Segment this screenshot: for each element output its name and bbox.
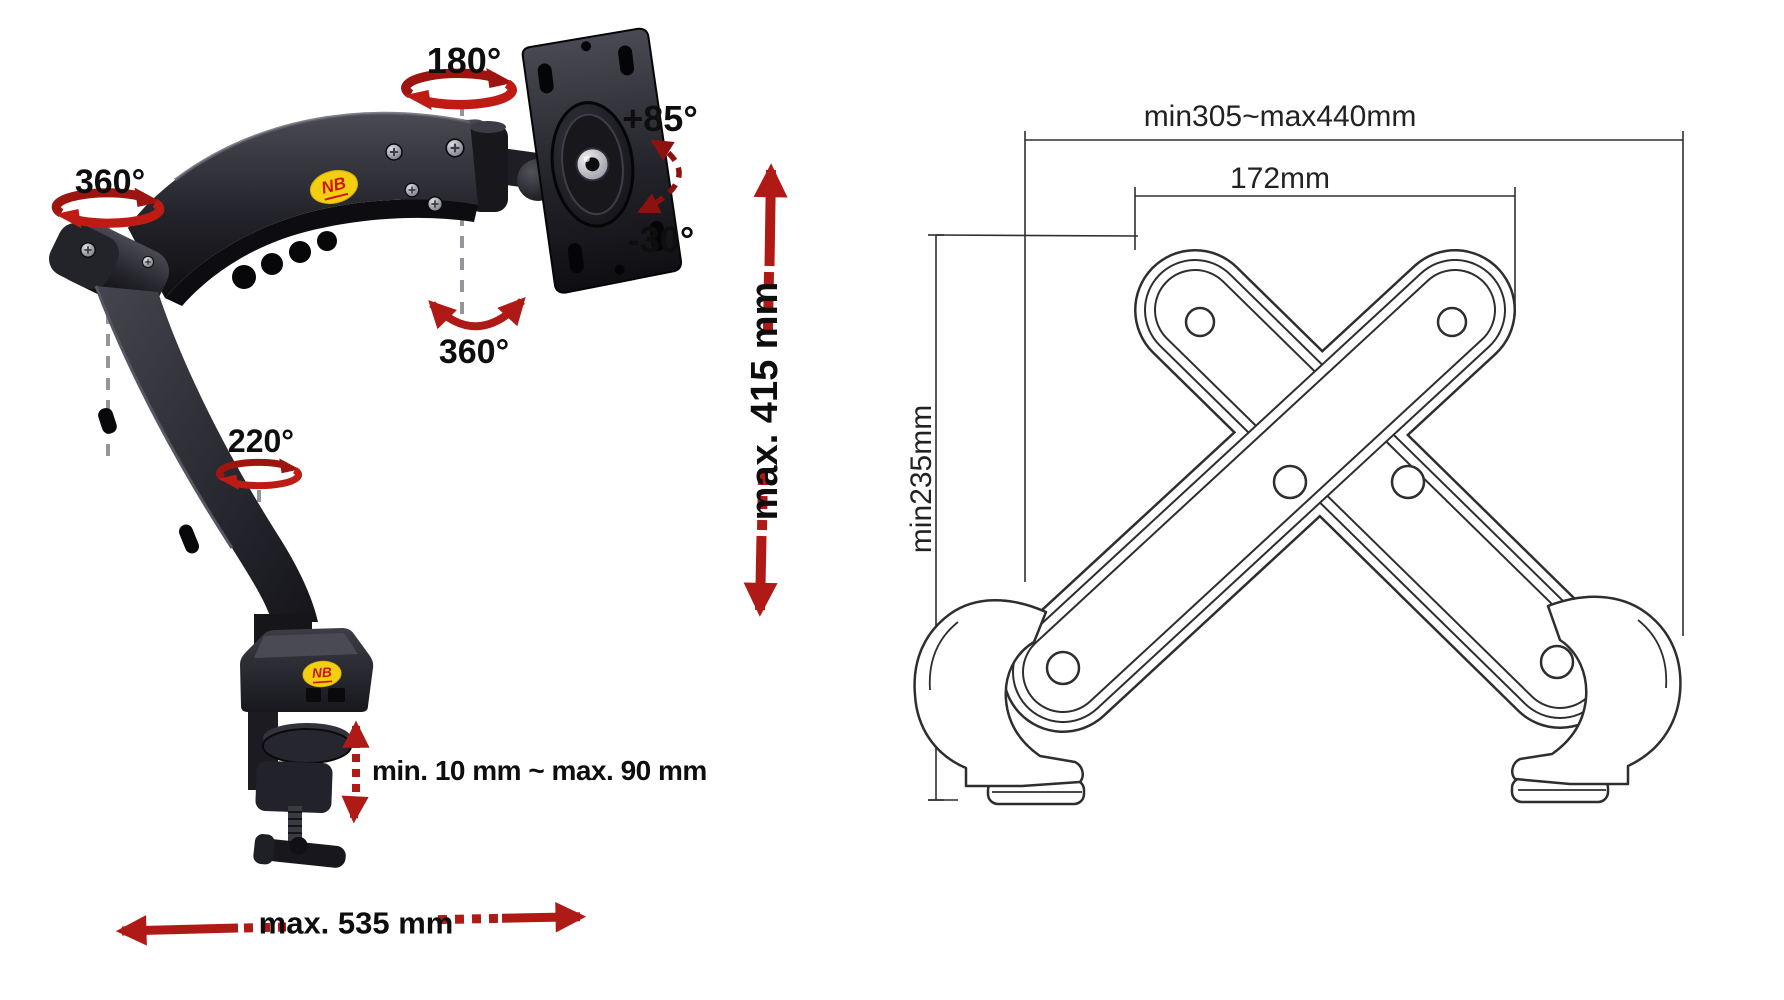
label-bracket-width-range: min305~max440mm [1144, 102, 1417, 132]
desk-clamp-base: NB [240, 628, 373, 873]
clamp-range-arrow [354, 726, 356, 818]
monitor-arm-illustration: NB [43, 27, 771, 931]
rotation-arrow-head-360 [432, 301, 522, 326]
label-swivel-180: 180° [427, 43, 501, 79]
label-rotate-360-head: 360° [439, 335, 509, 369]
label-bracket-height-min: min235mm [907, 405, 937, 553]
label-tilt-up-85: +85° [622, 101, 697, 137]
label-reach: max. 535 mm [259, 908, 454, 939]
upper-arm [128, 113, 478, 306]
product-spec-diagram: NB [0, 0, 1784, 1000]
clamp-knob [253, 832, 348, 872]
diagram-artwork: NB [0, 0, 1784, 1000]
nb-logo-text: NB [312, 665, 333, 681]
vesa-bracket-drawing [915, 131, 1683, 804]
label-swivel-220: 220° [228, 425, 294, 457]
label-rotate-360-base: 360° [75, 165, 145, 199]
label-clamp-thickness: min. 10 mm ~ max. 90 mm [372, 757, 707, 785]
label-tilt-down-30: -30° [628, 222, 694, 258]
bracket-body [1063, 310, 1560, 672]
label-height-range: max. 415 mm [746, 282, 784, 521]
label-bracket-top-width: 172mm [1230, 164, 1330, 194]
